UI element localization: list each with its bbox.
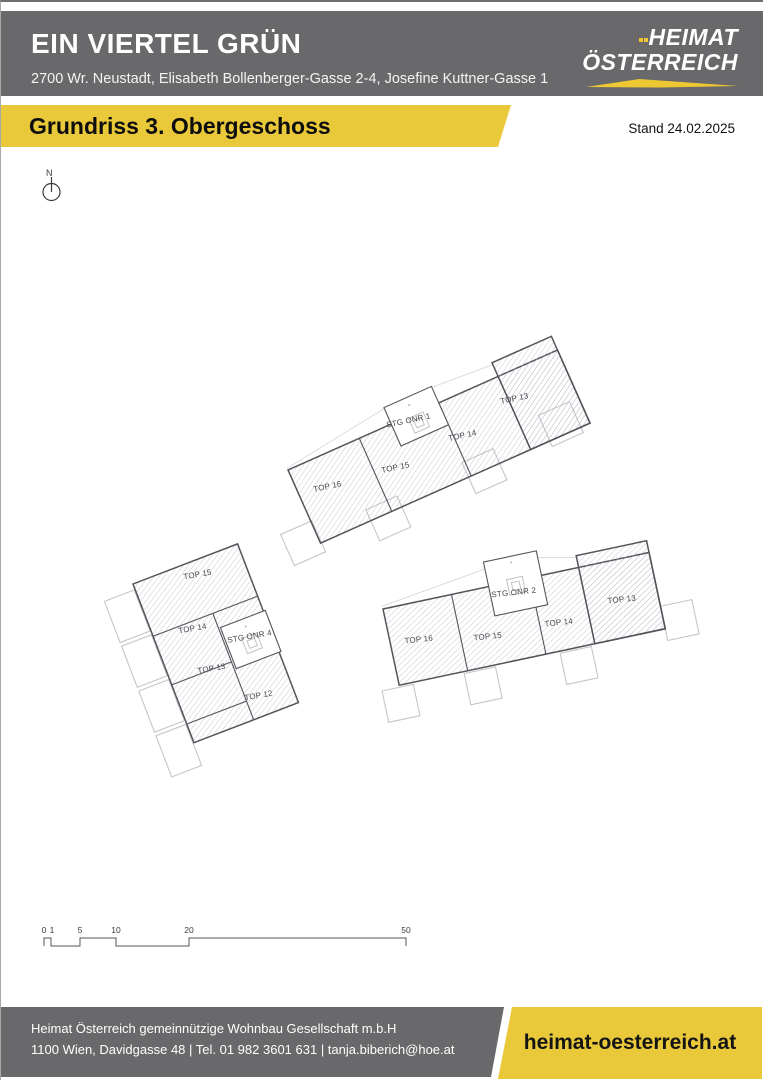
scale-bar: 0 1 5 10 20 50 bbox=[42, 925, 411, 946]
balcony bbox=[382, 684, 420, 722]
footer-band: Heimat Österreich gemeinnützige Wohnbau … bbox=[1, 1007, 521, 1077]
building-stg-4 bbox=[102, 543, 309, 777]
scale-tick-label: 5 bbox=[78, 925, 83, 935]
scale-tick-label: 0 bbox=[42, 925, 47, 935]
balcony bbox=[660, 600, 699, 641]
scale-tick-label: 20 bbox=[184, 925, 194, 935]
footer-contact: 1100 Wien, Davidgasse 48 | Tel. 01 982 3… bbox=[31, 1042, 454, 1057]
scale-tick-label: 10 bbox=[111, 925, 121, 935]
footer-company: Heimat Österreich gemeinnützige Wohnbau … bbox=[31, 1021, 396, 1036]
footer-website-link[interactable]: heimat-oesterreich.at bbox=[498, 1007, 762, 1079]
building-stg-1 bbox=[251, 334, 599, 577]
building-stg-2 bbox=[360, 521, 703, 722]
scale-tick-label: 1 bbox=[50, 925, 55, 935]
stairwell-box-stg2 bbox=[483, 551, 547, 616]
balcony bbox=[464, 667, 502, 705]
floor-plan-canvas: N TOP 16 TOP 15 STG ONR 1 TOP 14 TOP 13 bbox=[1, 2, 763, 1080]
footer-website-box: heimat-oesterreich.at bbox=[498, 1007, 762, 1079]
north-arrow-icon: N bbox=[43, 168, 60, 201]
balcony bbox=[560, 647, 598, 685]
plan-sheet-page: EIN VIERTEL GRÜN 2700 Wr. Neustadt, Elis… bbox=[0, 0, 763, 1080]
scale-tick-label: 50 bbox=[401, 925, 411, 935]
north-label: N bbox=[46, 168, 53, 178]
